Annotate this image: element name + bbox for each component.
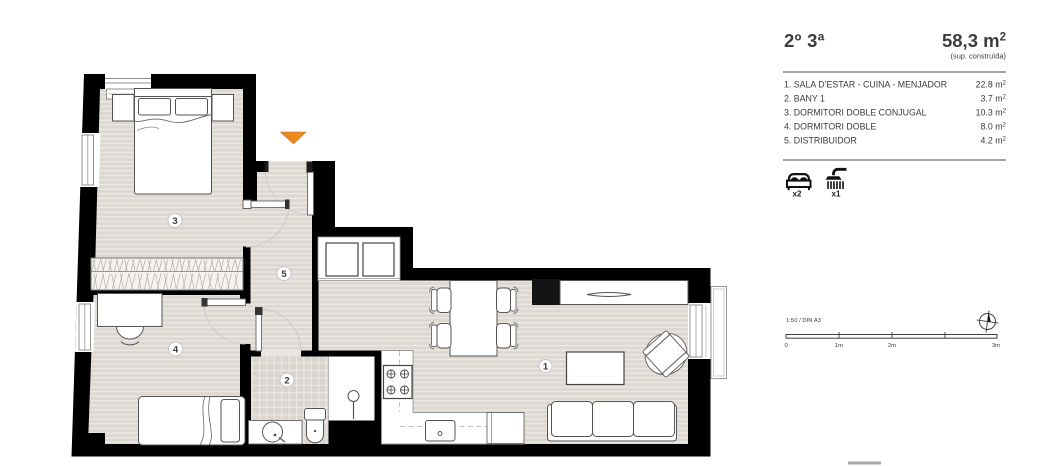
svg-text:5: 5 bbox=[281, 269, 287, 280]
svg-text:(sup. construïda): (sup. construïda) bbox=[951, 52, 1006, 61]
svg-text:0: 0 bbox=[785, 343, 789, 349]
svg-text:1:50 / DIN A3: 1:50 / DIN A3 bbox=[786, 318, 822, 324]
svg-text:4. DORMITORI DOBLE: 4. DORMITORI DOBLE bbox=[784, 122, 876, 132]
svg-text:5. DISTRIBUIDOR: 5. DISTRIBUIDOR bbox=[784, 136, 857, 146]
svg-text:10.3 m2: 10.3 m2 bbox=[976, 107, 1007, 117]
svg-text:3.7 m2: 3.7 m2 bbox=[981, 93, 1007, 103]
svg-text:4: 4 bbox=[173, 345, 179, 356]
svg-text:3. DORMITORI DOBLE CONJUGAL: 3. DORMITORI DOBLE CONJUGAL bbox=[784, 108, 927, 118]
svg-text:8.0 m2: 8.0 m2 bbox=[981, 121, 1007, 131]
svg-text:3m: 3m bbox=[992, 343, 1000, 349]
svg-text:x2: x2 bbox=[793, 190, 802, 199]
svg-text:4.2 m2: 4.2 m2 bbox=[981, 135, 1007, 145]
svg-text:2m: 2m bbox=[888, 343, 896, 349]
svg-text:1: 1 bbox=[543, 362, 549, 373]
svg-text:2: 2 bbox=[284, 376, 289, 387]
svg-text:1m: 1m bbox=[835, 343, 843, 349]
svg-text:58,3 m2: 58,3 m2 bbox=[942, 30, 1006, 51]
svg-text:1. SALA D’ESTAR - CUINA - MENJ: 1. SALA D’ESTAR - CUINA - MENJADOR bbox=[784, 80, 947, 90]
svg-text:2º 3ª: 2º 3ª bbox=[784, 30, 825, 51]
svg-text:3: 3 bbox=[172, 216, 177, 227]
svg-text:2. BANY 1: 2. BANY 1 bbox=[784, 94, 825, 104]
svg-text:22.8 m2: 22.8 m2 bbox=[976, 79, 1007, 89]
svg-text:x1: x1 bbox=[832, 190, 841, 199]
